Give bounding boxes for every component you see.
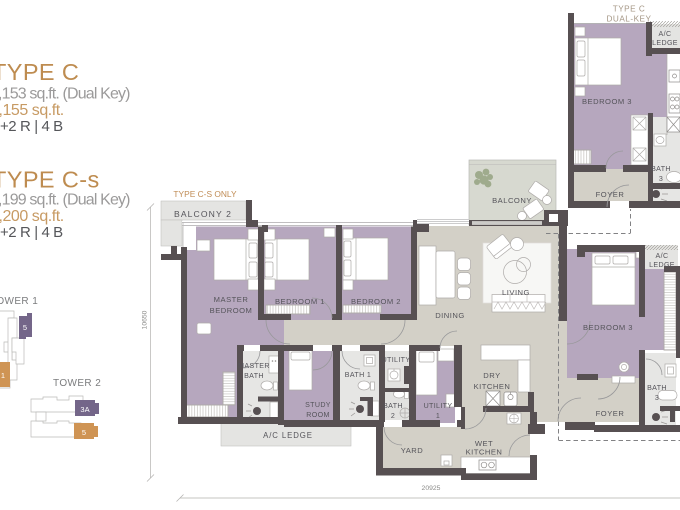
svg-text:DINING: DINING bbox=[435, 311, 465, 320]
svg-text:BEDROOM 1: BEDROOM 1 bbox=[275, 297, 325, 306]
svg-text:FOYER: FOYER bbox=[596, 409, 625, 418]
svg-text:BEDROOM: BEDROOM bbox=[210, 306, 253, 315]
svg-text:A/C: A/C bbox=[656, 252, 669, 260]
svg-text:4+2 R | 4 B: 4+2 R | 4 B bbox=[0, 118, 63, 135]
svg-text:BATH: BATH bbox=[651, 165, 671, 173]
svg-text:20925: 20925 bbox=[422, 485, 441, 492]
svg-text:UTILITY: UTILITY bbox=[424, 402, 453, 410]
svg-text:KITCHEN: KITCHEN bbox=[466, 448, 503, 457]
svg-text:LEDGE: LEDGE bbox=[649, 261, 675, 269]
svg-text:YARD: YARD bbox=[401, 446, 424, 455]
svg-text:TOWER 2: TOWER 2 bbox=[53, 378, 101, 389]
svg-text:UTILITY: UTILITY bbox=[382, 356, 411, 364]
svg-text:2: 2 bbox=[391, 412, 395, 420]
svg-text:BATH: BATH bbox=[244, 372, 264, 380]
svg-text:2,155 sq.ft.: 2,155 sq.ft. bbox=[0, 102, 64, 119]
svg-text:TOWER 1: TOWER 1 bbox=[0, 296, 38, 307]
svg-text:1: 1 bbox=[1, 371, 5, 380]
svg-text:DRY: DRY bbox=[483, 371, 500, 380]
svg-text:3: 3 bbox=[655, 394, 659, 402]
svg-text:3A: 3A bbox=[80, 405, 89, 414]
svg-text:3: 3 bbox=[659, 175, 663, 183]
svg-text:5: 5 bbox=[82, 428, 86, 437]
svg-text:STUDY: STUDY bbox=[305, 401, 331, 409]
svg-text:KITCHEN: KITCHEN bbox=[474, 382, 511, 391]
svg-text:LEDGE: LEDGE bbox=[652, 39, 678, 47]
svg-text:2,200 sq.ft.: 2,200 sq.ft. bbox=[0, 208, 64, 225]
svg-text:BATH 1: BATH 1 bbox=[345, 371, 371, 379]
svg-text:FOYER: FOYER bbox=[596, 190, 625, 199]
svg-text:A/C LEDGE: A/C LEDGE bbox=[263, 431, 313, 440]
svg-text:DUAL-KEY: DUAL-KEY bbox=[607, 15, 652, 24]
svg-text:5: 5 bbox=[23, 323, 27, 332]
svg-text:MASTER: MASTER bbox=[238, 362, 270, 370]
svg-text:BEDROOM 3: BEDROOM 3 bbox=[583, 323, 633, 332]
svg-text:2,153 sq.ft. (Dual Key): 2,153 sq.ft. (Dual Key) bbox=[0, 86, 130, 103]
svg-text:TYPE C-S ONLY: TYPE C-S ONLY bbox=[173, 189, 237, 199]
svg-text:TYPE C-s: TYPE C-s bbox=[0, 167, 100, 193]
svg-text:BATH: BATH bbox=[647, 384, 667, 392]
svg-text:2,199 sq.ft. (Dual Key): 2,199 sq.ft. (Dual Key) bbox=[0, 192, 130, 209]
svg-text:TYPE C: TYPE C bbox=[613, 5, 646, 14]
svg-text:TYPE C: TYPE C bbox=[0, 59, 79, 85]
svg-text:LIVING: LIVING bbox=[502, 288, 530, 297]
svg-text:MASTER: MASTER bbox=[214, 295, 249, 304]
svg-text:1: 1 bbox=[436, 412, 440, 420]
svg-text:ROOM: ROOM bbox=[306, 411, 329, 419]
svg-text:BATH: BATH bbox=[383, 402, 403, 410]
svg-text:10650: 10650 bbox=[142, 310, 149, 329]
svg-text:4+2 R | 4 B: 4+2 R | 4 B bbox=[0, 224, 63, 241]
svg-text:BEDROOM 2: BEDROOM 2 bbox=[351, 297, 401, 306]
svg-text:BALCONY 2: BALCONY 2 bbox=[174, 209, 232, 219]
svg-text:BALCONY: BALCONY bbox=[492, 196, 532, 205]
svg-text:BEDROOM 3: BEDROOM 3 bbox=[582, 97, 632, 106]
svg-text:A/C: A/C bbox=[659, 30, 672, 38]
